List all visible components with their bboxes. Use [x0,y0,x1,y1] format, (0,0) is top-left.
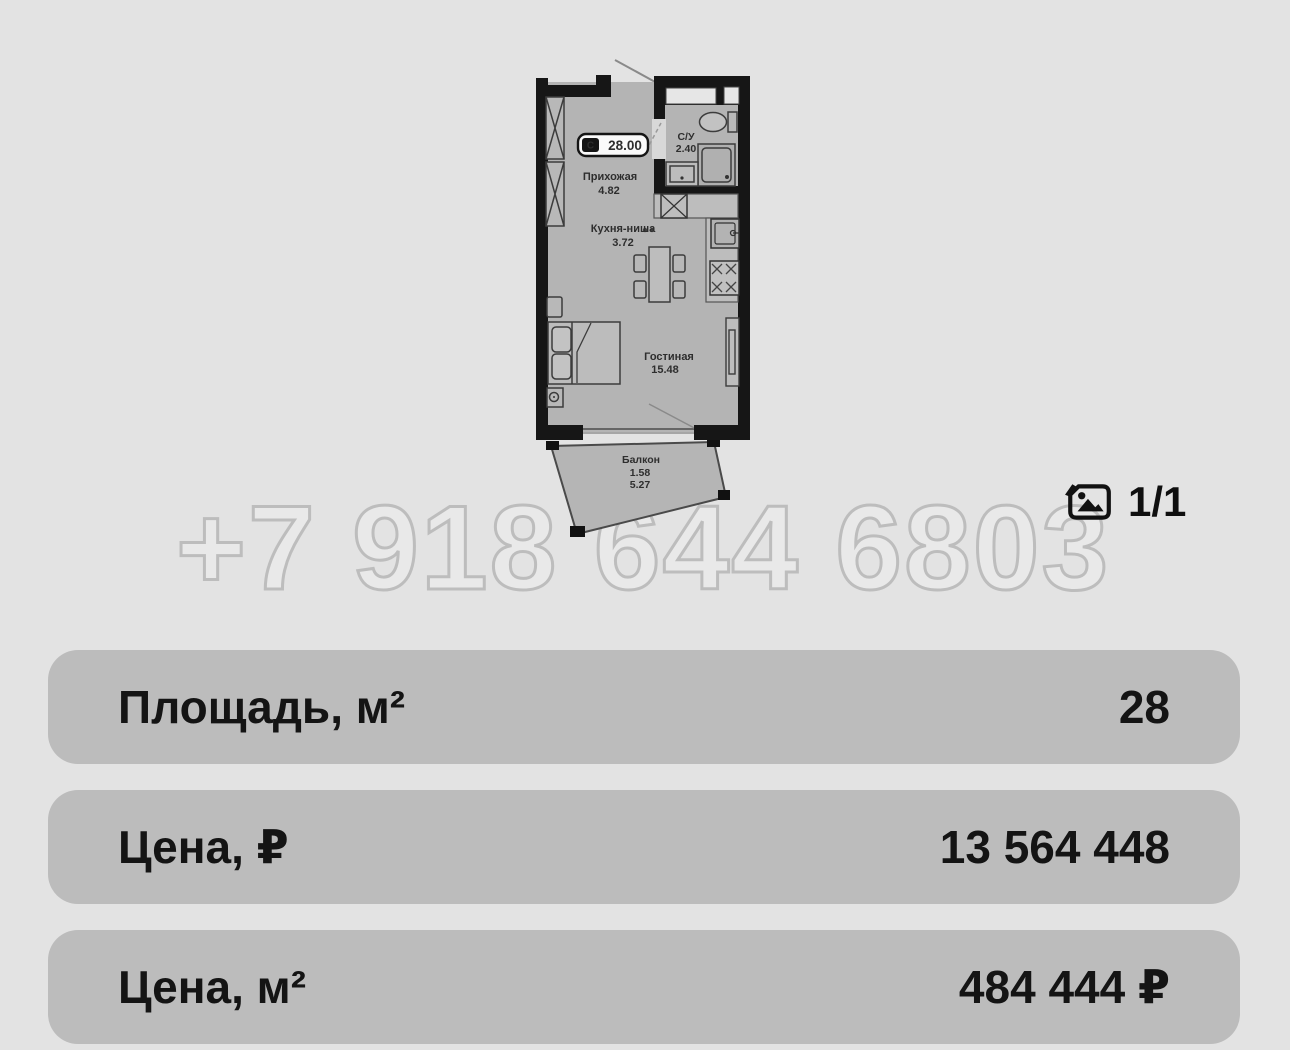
svg-text:28.00: 28.00 [608,138,642,153]
svg-text:Балкон: Балкон [622,454,660,466]
svg-text:С: С [587,141,594,152]
entry-door-swing [615,60,657,83]
spec-label: Площадь, м² [118,684,405,730]
radiator [726,318,739,386]
photos-icon [1064,480,1114,524]
spec-value: 28 [1119,684,1170,730]
spec-row-area: Площадь, м² 28 [48,650,1240,764]
svg-text:С/У: С/У [677,131,695,143]
spec-row-price: Цена, ₽ 13 564 448 [48,790,1240,904]
total-area-badge: С 28.00 [578,134,648,156]
wardrobes [546,97,564,226]
spec-label: Цена, ₽ [118,824,289,870]
page: +7 918 644 6803 Балкон 1.58 5.27 [0,0,1290,1050]
svg-text:15.48: 15.48 [651,364,679,376]
svg-text:Прихожая: Прихожая [583,171,637,183]
svg-text:2.40: 2.40 [676,143,697,155]
gallery-counter[interactable]: 1/1 [1064,480,1186,524]
svg-text:3.72: 3.72 [612,237,633,249]
svg-text:Гостиная: Гостиная [644,351,694,363]
spec-label: Цена, м² [118,964,306,1010]
floorplan-image[interactable]: Балкон 1.58 5.27 [510,0,800,560]
gallery-counter-text: 1/1 [1128,481,1186,523]
svg-text:5.27: 5.27 [630,479,651,491]
svg-text:4.82: 4.82 [598,185,619,197]
svg-text:1.58: 1.58 [630,467,651,479]
spec-value: 484 444 ₽ [959,964,1170,1010]
balcony: Балкон 1.58 5.27 [546,438,730,537]
svg-text:Кухня-ниша: Кухня-ниша [591,223,656,235]
spec-row-price-per-m2: Цена, м² 484 444 ₽ [48,930,1240,1044]
spec-value: 13 564 448 [940,824,1170,870]
